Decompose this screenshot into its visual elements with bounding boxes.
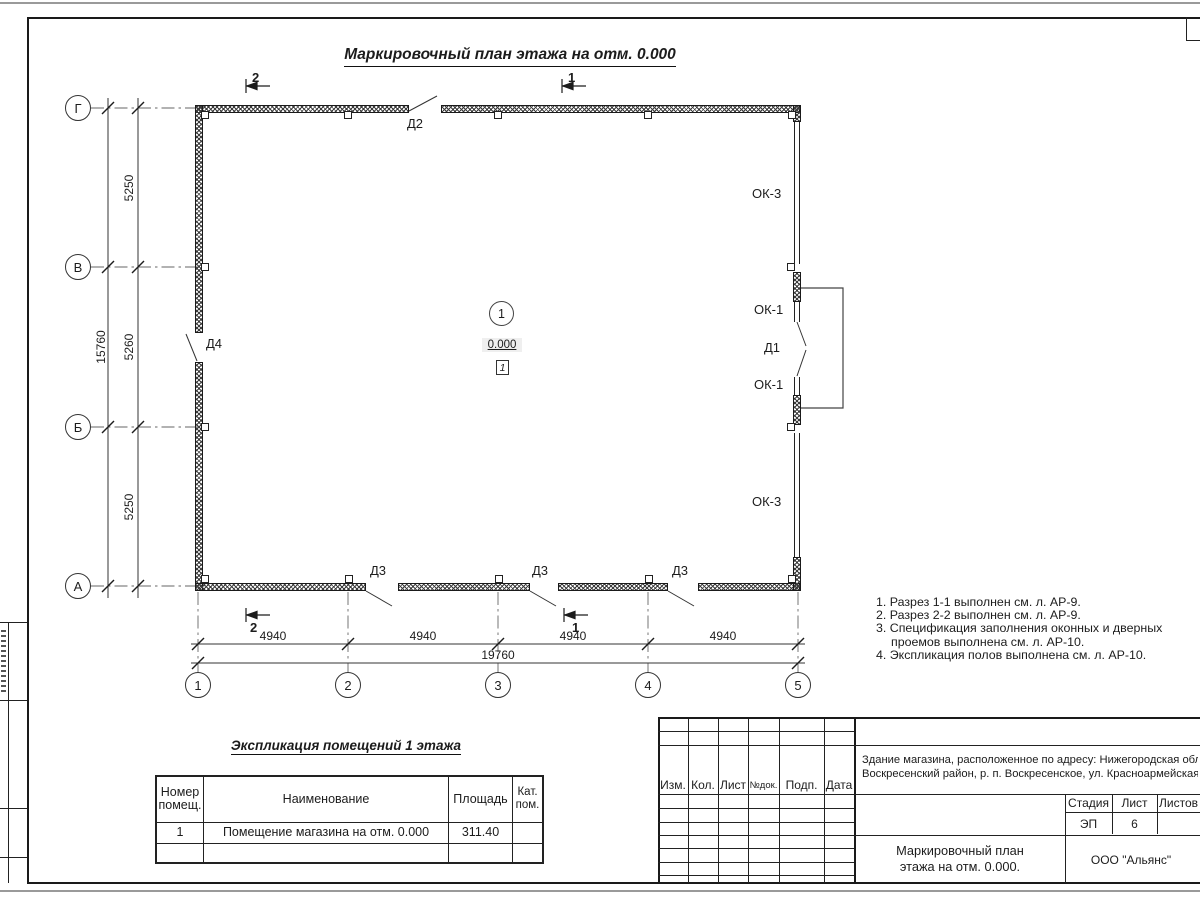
pilaster (787, 263, 795, 271)
note-line: 3. Спецификация заполнения оконных и две… (876, 622, 1162, 635)
door-label-d1: Д1 (764, 340, 780, 355)
cell-category (513, 822, 544, 843)
table-row-empty (156, 843, 543, 863)
pilaster (201, 423, 209, 431)
stamp-col-line (748, 717, 749, 883)
stamp-col-ndok: №док. (748, 776, 779, 794)
wall-top-left (195, 105, 409, 113)
header-text: Площадь (453, 792, 507, 806)
stamp-row-line (658, 745, 1200, 746)
stamp-col-list: Лист (718, 776, 748, 794)
stamp-row-line (658, 862, 854, 863)
wall-right-bottom-corner (793, 557, 801, 591)
stamp-col-izm: Изм. (658, 776, 688, 794)
axis-label: 2 (344, 678, 351, 693)
stamp-row-line (658, 835, 1200, 836)
pilaster (645, 575, 653, 583)
door-label-d3-2: Д3 (532, 563, 548, 578)
explication-title-text: Экспликация помещений 1 этажа (231, 738, 461, 755)
header-text: пом. (516, 799, 540, 811)
dim-left-3: 5250 (122, 477, 136, 537)
note-line: проемов выполнена см. л. АР-10. (876, 636, 1162, 649)
section-label-1-top: 1 (568, 70, 575, 85)
section-label-2-bottom: 2 (250, 620, 257, 635)
window-ok1-lower (794, 377, 800, 395)
stamp-left (658, 717, 660, 883)
section-label-2-top: 2 (252, 70, 259, 85)
stamp-sheets-label: Листов (1157, 795, 1200, 811)
door-leaf-d4 (186, 334, 197, 361)
header-area: Площадь (449, 776, 513, 822)
stamp-object-line1: Здание магазина, расположенное по адресу… (862, 753, 1198, 766)
stamp-doc-title-line2: этажа на отм. 0.000. (856, 859, 1064, 874)
axis-label: Г (74, 101, 81, 116)
stamp-sheet-label: Лист (1112, 795, 1157, 811)
door-leaf-d2 (409, 96, 437, 111)
pilaster (644, 111, 652, 119)
pilaster (495, 575, 503, 583)
header-name: Наименование (204, 776, 449, 822)
header-category: Кат. пом. (513, 776, 544, 822)
note-line: 4. Экспликация полов выполнена см. л. АР… (876, 649, 1162, 662)
wall-bottom-1 (195, 583, 366, 591)
dim-bottom-4: 4940 (693, 629, 753, 643)
axis-circle-g: Г (65, 95, 91, 121)
explication-title: Экспликация помещений 1 этажа (155, 737, 537, 755)
notes-block: 1. Разрез 1-1 выполнен см. л. АР-9. 2. Р… (876, 596, 1162, 662)
header-text: Наименование (283, 792, 370, 806)
window-ok3-lower (794, 433, 800, 557)
axis-circle-2: 2 (335, 672, 361, 698)
window-ok1-upper (794, 302, 800, 322)
wall-bottom-2 (398, 583, 530, 591)
axis-label: 5 (794, 678, 801, 693)
window-label-ok1-upper: ОК-1 (754, 302, 783, 317)
explication-header-row: Номер помещ. Наименование Площадь Кат. п… (156, 776, 543, 822)
axis-circle-4: 4 (635, 672, 661, 698)
stamp-row-line (658, 808, 854, 809)
door-leaf-d3-2 (530, 591, 556, 606)
stamp-stage-label: Стадия (1065, 795, 1112, 811)
pilaster (345, 575, 353, 583)
dim-left-1: 5250 (122, 158, 136, 218)
axis-circle-1: 1 (185, 672, 211, 698)
floor-type-mark: 1 (496, 360, 509, 375)
section-marks (246, 79, 588, 622)
door-leaf-d3-1 (366, 591, 392, 606)
axis-circle-b: Б (65, 414, 91, 440)
door-label-d4: Д4 (206, 336, 222, 351)
wall-right-mid-upper (793, 272, 801, 302)
stamp-col-line (779, 717, 780, 883)
window-label-ok3-upper: ОК-3 (752, 186, 781, 201)
door-label-d3-1: Д3 (370, 563, 386, 578)
axis-label: 3 (494, 678, 501, 693)
stamp-stage-value: ЭП (1065, 813, 1112, 834)
stamp-row-line (658, 875, 854, 876)
stamp-col-kol: Кол. (688, 776, 718, 794)
section-label-1-bottom: 1 (572, 620, 579, 635)
cell-room-number: 1 (156, 822, 204, 843)
door-leaf-d3-3 (668, 591, 694, 606)
axis-label: А (74, 579, 83, 594)
wall-bottom-4 (698, 583, 800, 591)
axis-circle-v: В (65, 254, 91, 280)
elevation-mark: 0.000 (482, 338, 522, 352)
header-text: Номер (161, 785, 199, 799)
axis-label: 4 (644, 678, 651, 693)
empty-cell (156, 843, 204, 863)
stamp-col-line (688, 717, 689, 883)
dim-bottom-2: 4940 (393, 629, 453, 643)
stamp-col-line (824, 717, 825, 883)
wall-right-mid-lower (793, 395, 801, 425)
wall-left-upper (195, 105, 203, 333)
window-label-ok1-lower: ОК-1 (754, 377, 783, 392)
room-number-tag: 1 (489, 301, 514, 326)
pilaster (787, 423, 795, 431)
dim-left-2: 5260 (122, 317, 136, 377)
pilaster (201, 263, 209, 271)
door-label-d2: Д2 (407, 116, 423, 131)
pilaster (494, 111, 502, 119)
stamp-company: ООО "Альянс" (1065, 852, 1197, 868)
dim-total-bottom: 19760 (468, 648, 528, 662)
header-room-number: Номер помещ. (156, 776, 204, 822)
cell-area: 311.40 (449, 822, 513, 843)
stamp-col-line (718, 717, 719, 883)
empty-cell (449, 843, 513, 863)
axis-label: 1 (194, 678, 201, 693)
door-leaf-d1-bottom (797, 350, 806, 376)
header-text: Кат. (517, 786, 537, 798)
entrance-porch (801, 288, 843, 408)
stamp-row-line (658, 731, 854, 732)
stamp-col-data: Дата (824, 776, 854, 794)
wall-bottom-3 (558, 583, 668, 591)
wall-left-lower (195, 362, 203, 591)
empty-cell (513, 843, 544, 863)
drawing-sheet: Маркировочный план этажа на отм. 0.000 (0, 0, 1200, 900)
pilaster (788, 111, 796, 119)
explication-table: Номер помещ. Наименование Площадь Кат. п… (155, 775, 544, 864)
door-label-d3-3: Д3 (672, 563, 688, 578)
stamp-sheets-value (1157, 813, 1200, 834)
stamp-row-line (658, 822, 854, 823)
room-number: 1 (498, 307, 505, 321)
header-text: помещ. (158, 798, 201, 812)
table-row: 1 Помещение магазина на отм. 0.000 311.4… (156, 822, 543, 843)
door-leaf-d1-top (797, 322, 806, 346)
pilaster (788, 575, 796, 583)
empty-cell (204, 843, 449, 863)
cell-name: Помещение магазина на отм. 0.000 (204, 822, 449, 843)
axis-label: Б (74, 420, 83, 435)
dim-total-left: 15760 (94, 317, 108, 377)
pilaster (344, 111, 352, 119)
axis-label: В (74, 260, 83, 275)
pilaster (201, 575, 209, 583)
axis-circle-5: 5 (785, 672, 811, 698)
stamp-doc-title-line1: Маркировочный план (856, 843, 1064, 858)
dimension-lines (108, 98, 805, 663)
stamp-sheet-value: 6 (1112, 813, 1157, 834)
stamp-object-line2: Воскресенский район, р. п. Воскресенское… (862, 767, 1198, 780)
stamp-top (658, 717, 1200, 719)
stamp-col-podp: Подп. (779, 776, 824, 794)
axis-circle-3: 3 (485, 672, 511, 698)
window-label-ok3-lower: ОК-3 (752, 494, 781, 509)
axis-circle-a: А (65, 573, 91, 599)
stamp-row-line (658, 848, 854, 849)
pilaster (201, 111, 209, 119)
window-ok3-upper (794, 122, 800, 264)
